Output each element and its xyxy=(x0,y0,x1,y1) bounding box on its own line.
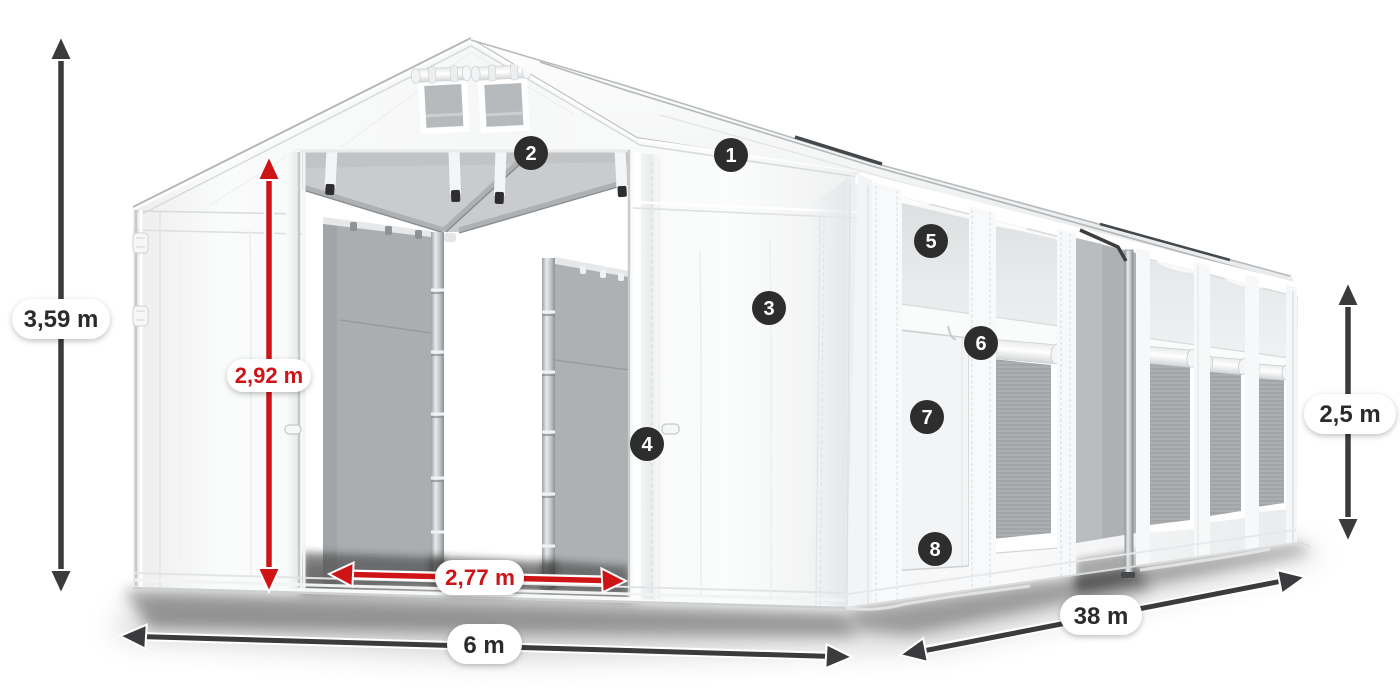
svg-text:5: 5 xyxy=(925,231,936,253)
svg-text:3,59 m: 3,59 m xyxy=(24,306,99,333)
svg-text:7: 7 xyxy=(921,407,932,429)
svg-text:6 m: 6 m xyxy=(463,632,504,659)
svg-text:38 m: 38 m xyxy=(1074,603,1129,630)
svg-text:2,77 m: 2,77 m xyxy=(445,565,515,590)
svg-text:6: 6 xyxy=(975,333,986,355)
svg-text:4: 4 xyxy=(641,434,653,456)
svg-text:2,5 m: 2,5 m xyxy=(1319,401,1380,428)
svg-text:2: 2 xyxy=(525,143,536,165)
svg-text:1: 1 xyxy=(725,145,736,167)
svg-text:2,92 m: 2,92 m xyxy=(235,363,304,388)
svg-text:8: 8 xyxy=(929,539,940,561)
svg-text:3: 3 xyxy=(763,298,774,320)
